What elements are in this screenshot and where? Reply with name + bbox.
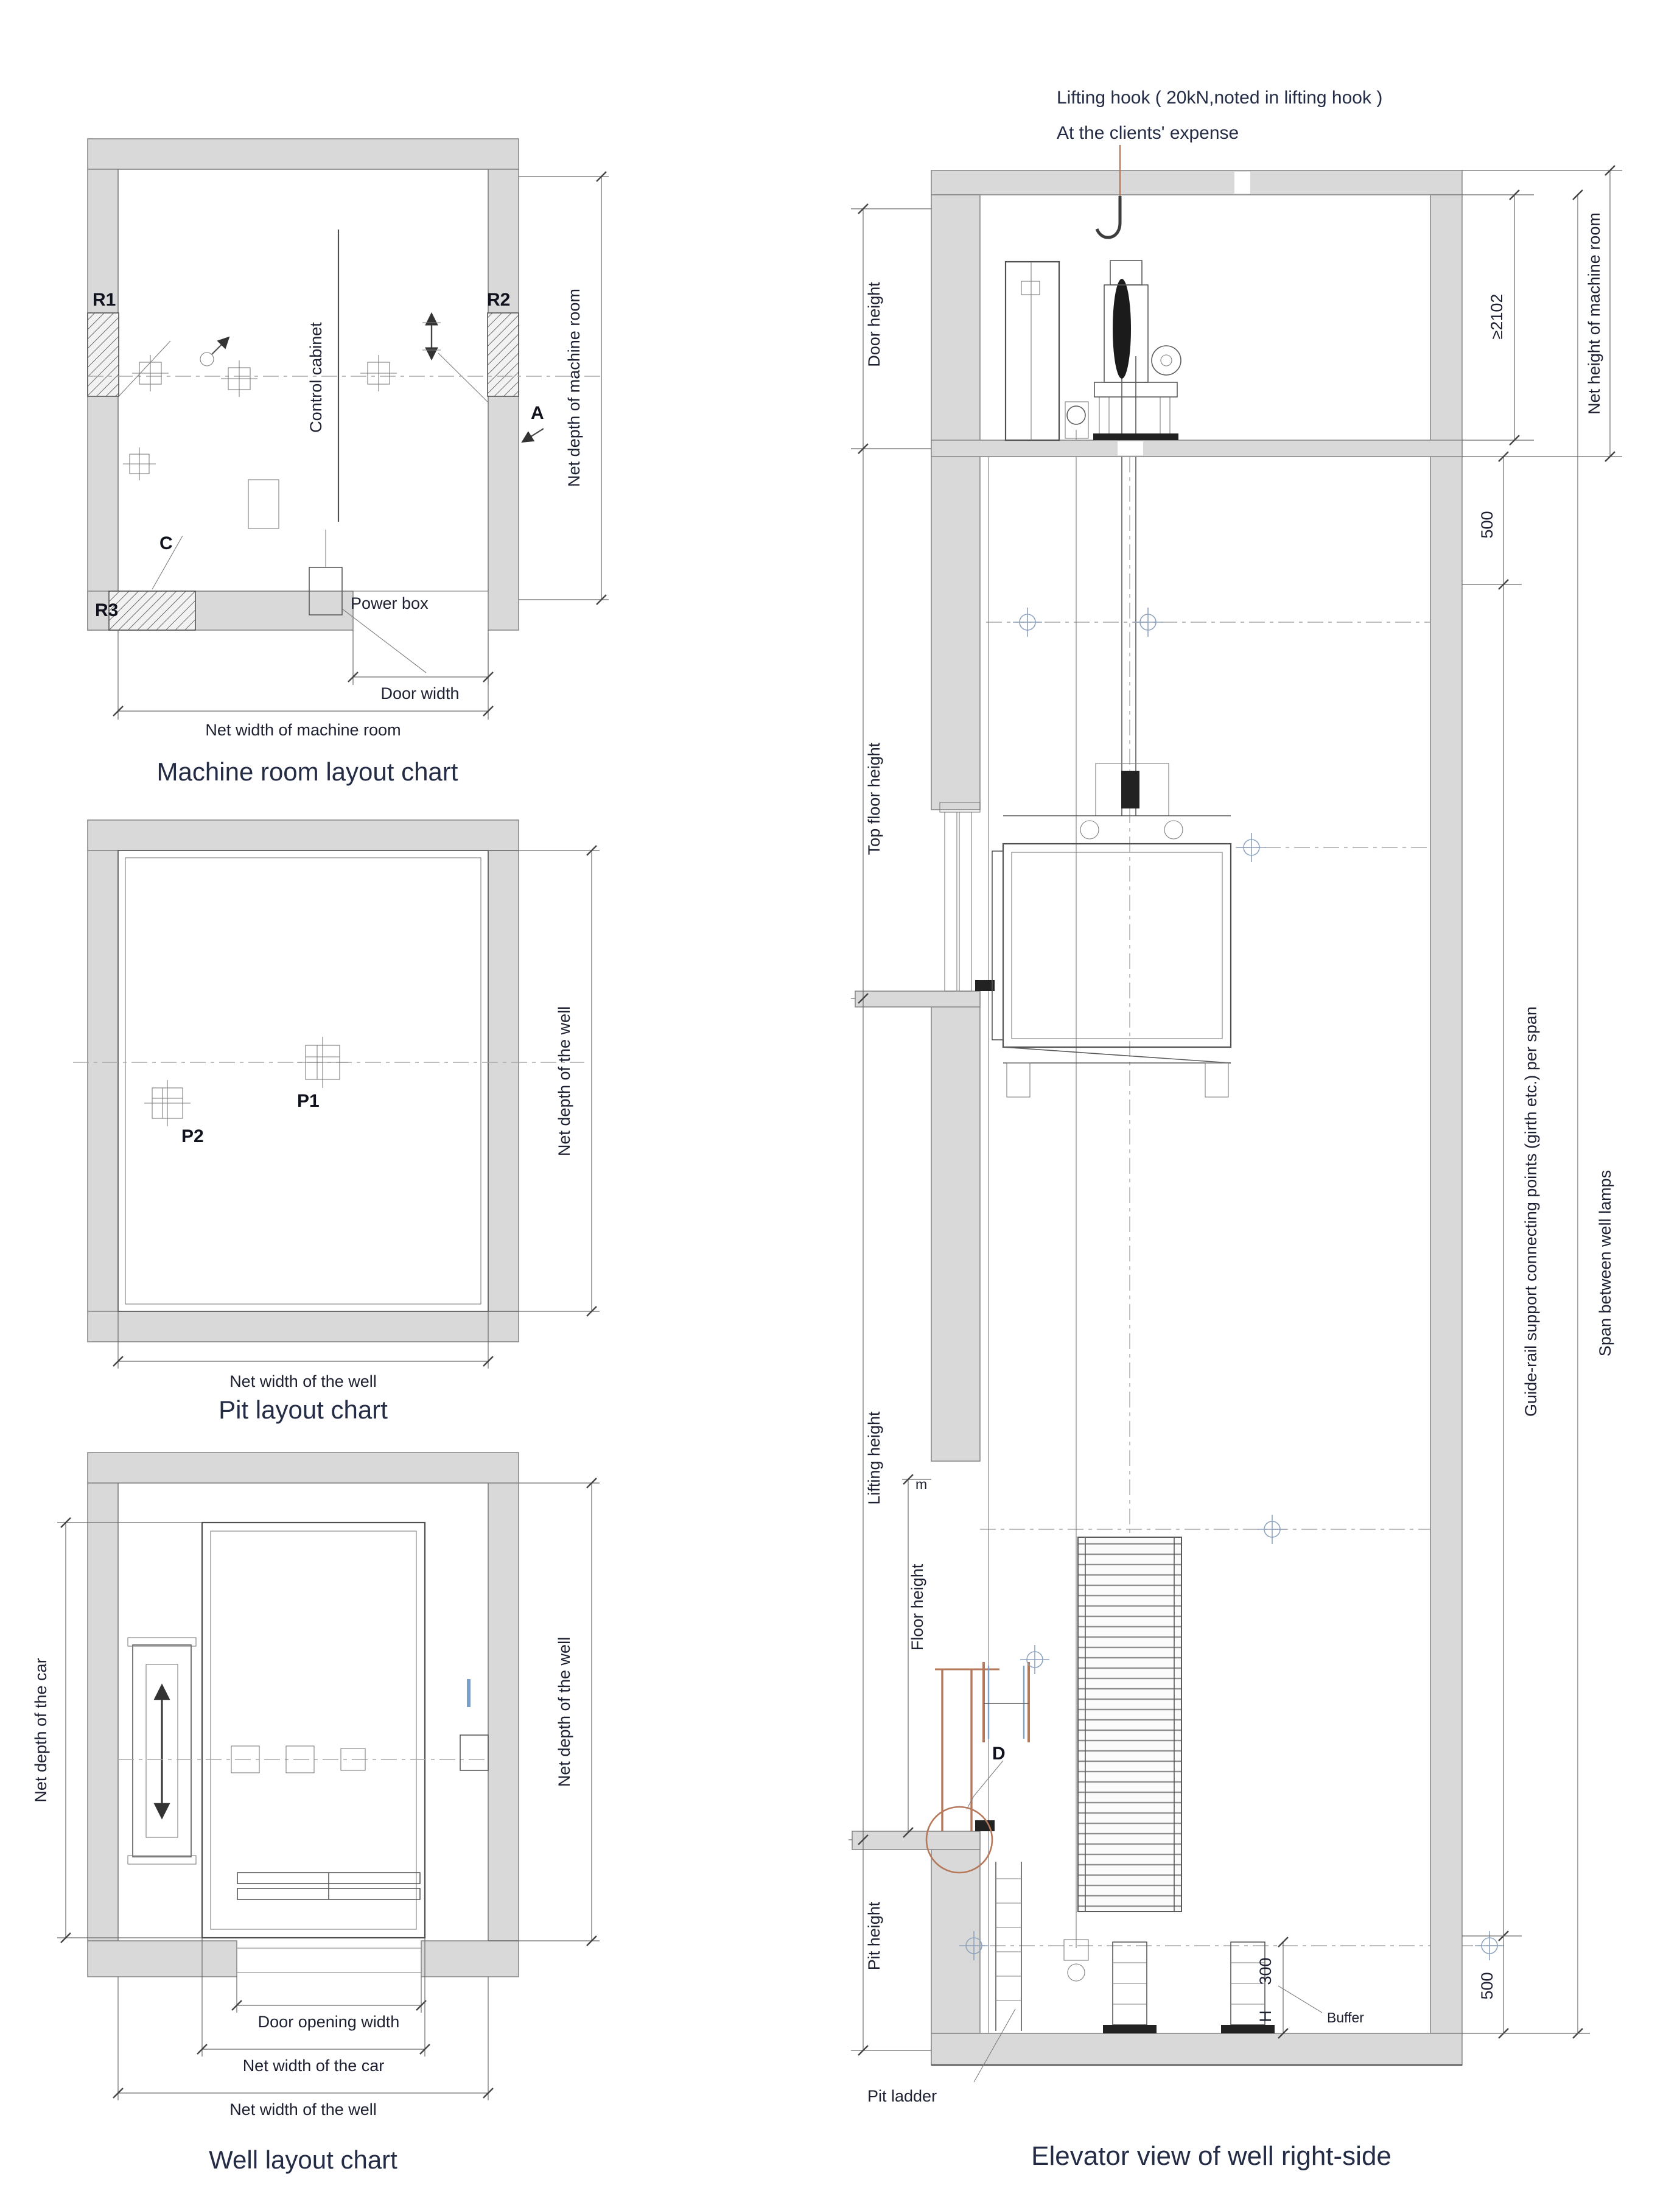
- pit-label-p1: P1: [297, 1091, 320, 1111]
- pit-wall-left: [88, 850, 118, 1311]
- mr-label-r3: R3: [95, 600, 118, 620]
- well-dim-net-depth-car: [57, 1518, 202, 1943]
- well-wall-bottom-right: [421, 1941, 519, 1977]
- well-dim-net-depth-car-label: Net depth of the car: [32, 1658, 50, 1802]
- mr-r2-leader: [438, 353, 488, 402]
- elev-dim-top-floor-height: Top floor height: [865, 742, 883, 855]
- mr-label-c: C: [159, 533, 173, 553]
- pit-well-outline-inner: [125, 858, 481, 1304]
- mr-dim-net-depth: [519, 172, 609, 605]
- elev-left-wall-pit: [931, 1832, 980, 2033]
- pit-chart-title: Pit layout chart: [219, 1395, 388, 1424]
- pit-layout-chart: P1 P2 Net width of the well Net depth of…: [73, 820, 600, 1424]
- mr-label-r2: R2: [487, 290, 510, 310]
- mr-adjust-icon: [422, 314, 441, 359]
- well-wall-bottom-left: [88, 1941, 237, 1977]
- elev-buffer-leader: [1278, 1986, 1322, 2013]
- well-dim-door-opening: [232, 1977, 426, 2013]
- elev-top-slab: [931, 170, 1462, 195]
- elev-left-wall-mid: [931, 992, 980, 1461]
- elev-dim-buffer-300: 300: [1256, 1957, 1275, 1985]
- well-car-inner: [211, 1531, 416, 1929]
- elev-floor-height-dim: [902, 1474, 931, 1837]
- elev-note-lifting-hook: Lifting hook ( 20kN,noted in lifting hoo…: [1057, 88, 1382, 108]
- elev-dim-lifting-height: Lifting height: [865, 1411, 883, 1505]
- elev-ground-floor-slab: [852, 1831, 980, 1850]
- mr-chart-title: Machine room layout chart: [157, 757, 458, 786]
- elev-governor: [1065, 402, 1088, 438]
- mr-cabinet-seat: [248, 480, 279, 528]
- well-wall-right: [488, 1483, 519, 1941]
- elev-car-door: [992, 851, 1003, 1040]
- mr-dim-door-width-label: Door width: [380, 684, 459, 703]
- well-dim-door-opening-label: Door opening width: [258, 2013, 400, 2031]
- well-dim-net-width-well-label: Net width of the well: [229, 2100, 377, 2119]
- elev-dim-net-height-machine-room: Net height of machine room: [1585, 212, 1603, 415]
- elev-floor-rope-slot: [1118, 441, 1143, 455]
- elev-dim-span-top: 500: [1478, 511, 1496, 538]
- elev-left-wall-upper: [931, 195, 980, 810]
- well-car-door-panels: [237, 1873, 420, 1899]
- elev-counterweight: [1078, 1537, 1181, 1912]
- pit-well-outline: [118, 850, 488, 1311]
- mr-wall-top: [88, 139, 519, 169]
- well-dim-net-width-car-label: Net width of the car: [243, 2057, 385, 2075]
- elev-dim-pit-height: Pit height: [865, 1901, 883, 1970]
- well-wall-top: [88, 1453, 519, 1483]
- elev-dim-well-lamps-label: Span between well lamps: [1596, 1170, 1614, 1356]
- pit-dim-net-width-label: Net width of the well: [229, 1372, 377, 1390]
- elevation-view: Lifting hook ( 20kN,noted in lifting hoo…: [849, 88, 1622, 2171]
- well-door-operator: [128, 1638, 196, 1864]
- elev-safety-gear-left: [1007, 1063, 1030, 1097]
- elev-dim-buffer-h: H: [1256, 2010, 1275, 2022]
- well-car-outline: [202, 1523, 425, 1938]
- elev-dim-guide-rail-label: Guide-rail support connecting points (gi…: [1522, 1006, 1540, 1417]
- mr-dim-net-depth-label: Net depth of machine room: [565, 289, 583, 487]
- elev-sill-ground-floor: [975, 1820, 995, 1831]
- elev-control-cabinet: [1006, 262, 1059, 440]
- pit-anchor-p1-icon: [297, 1037, 348, 1088]
- well-dim-net-width-well: [113, 1977, 493, 2100]
- well-rail-bracket: [460, 1735, 488, 1770]
- elev-traction-machine: [1093, 261, 1181, 440]
- mr-block-r2: [488, 313, 519, 396]
- machine-room-layout-chart: R1 R2 R3 C A Control cabinet Power box D…: [88, 139, 609, 786]
- elev-label-buffer: Buffer: [1327, 2010, 1364, 2025]
- elev-note-clients-expense: At the clients' expense: [1057, 123, 1239, 143]
- elev-dim-floor-height: Floor height: [908, 1563, 926, 1650]
- elev-dim-floor-height-suffix: m: [915, 1476, 927, 1492]
- elev-top-floor-slab: [855, 991, 980, 1007]
- pit-dim-net-depth-label: Net depth of the well: [555, 1006, 573, 1156]
- elev-car: [992, 763, 1231, 1097]
- mr-dim-door-width: [348, 630, 493, 685]
- mr-anchor-bolt-icons: [123, 355, 397, 480]
- elev-dim-door-height: Door height: [865, 282, 883, 367]
- elev-right-wall: [1430, 195, 1462, 2033]
- elev-safety-gear-right: [1205, 1063, 1228, 1097]
- mr-label-control-cabinet: Control cabinet: [307, 322, 325, 433]
- elev-pit-ladder-icon: [996, 1862, 1021, 2031]
- elev-machine-room-floor: [931, 440, 1462, 457]
- elev-buffer-dim: [1278, 1937, 1288, 2038]
- mr-label-a: A: [531, 403, 544, 423]
- mr-a-arrow: [522, 429, 544, 442]
- pit-label-p2: P2: [181, 1126, 204, 1146]
- elev-left-dim-chain: [849, 204, 931, 2055]
- pit-wall-right: [488, 850, 519, 1311]
- mr-direction-icon: [200, 337, 229, 366]
- well-chart-title: Well layout chart: [209, 2145, 397, 2174]
- mr-r1-leader: [119, 341, 170, 396]
- mr-wall-left: [88, 169, 118, 630]
- mr-dim-net-width-label: Net width of machine room: [205, 721, 401, 739]
- elev-top-floor-door: [940, 802, 980, 991]
- elevator-drawing-page: R1 R2 R3 C A Control cabinet Power box D…: [0, 0, 1680, 2188]
- elev-sill-top-floor: [975, 980, 995, 991]
- drawing-canvas: R1 R2 R3 C A Control cabinet Power box D…: [0, 0, 1680, 2188]
- well-dim-net-depth-well-label: Net depth of the well: [555, 1637, 573, 1787]
- mr-label-r1: R1: [93, 290, 116, 310]
- mr-room-inner-edge: [118, 169, 488, 591]
- mr-block-r3: [109, 591, 195, 630]
- mr-label-power-box: Power box: [351, 594, 429, 612]
- elev-sheave-icon: [1113, 279, 1131, 379]
- elev-pit-floor: [931, 2033, 1462, 2065]
- mr-wall-right: [488, 169, 519, 630]
- elev-right-dim-chains: [1462, 166, 1622, 2038]
- elev-slab-slot: [1234, 172, 1250, 194]
- elev-label-d: D: [992, 1744, 1006, 1764]
- pit-anchor-p2-icon: [144, 1080, 191, 1126]
- mr-block-r1: [88, 313, 119, 396]
- elev-centerline-markers: [959, 608, 1504, 1960]
- elev-label-pit-ladder: Pit ladder: [867, 2087, 937, 2105]
- elev-title: Elevator view of well right-side: [1031, 2141, 1391, 2171]
- well-wall-left: [88, 1483, 118, 1941]
- elev-dim-span-bottom: 500: [1478, 1972, 1496, 1999]
- mr-doorwidth-leader: [342, 609, 426, 673]
- elev-dim-machine-room-height: ≥2102: [1488, 294, 1506, 340]
- pit-wall-bottom: [88, 1311, 519, 1342]
- mr-dim-net-width: [113, 630, 493, 720]
- well-layout-chart: Net depth of the car Net depth of the we…: [32, 1453, 600, 2174]
- pit-wall-top: [88, 820, 519, 850]
- elev-cwt-buffer: [1103, 1942, 1157, 2033]
